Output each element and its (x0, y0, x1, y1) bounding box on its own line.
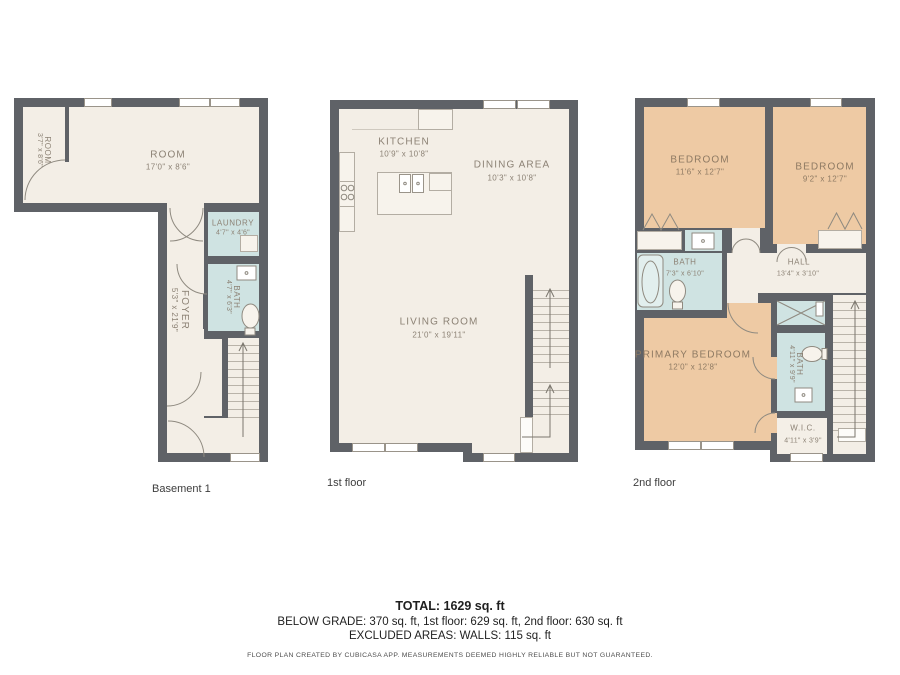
basement-plan: ROOM 3'7" x 8'6" ROOM 17'0" x 8'6" LAUND… (14, 98, 268, 463)
caption-first-floor: 1st floor (327, 477, 366, 489)
toilet-icon (242, 304, 259, 328)
room-dims: 10'3" x 10'8" (487, 174, 536, 183)
bifold-door (828, 213, 862, 229)
room-dims: 5'3" x 21'9" (170, 288, 179, 332)
second-floor-plan: BEDROOM 11'6" x 12'7" BEDROOM 9'2" x 12'… (635, 98, 875, 465)
stairs-arrow (239, 343, 247, 437)
room-label: BATH 4'7" x 6'3" (225, 280, 241, 314)
door-arc (170, 208, 203, 241)
room-label: W.I.C. (790, 424, 815, 433)
excluded-areas-text: EXCLUDED AREAS: WALLS: 115 sq. ft (0, 630, 900, 642)
stairs-arrow (837, 301, 859, 437)
sink-icon (692, 233, 714, 249)
stove-burner (341, 194, 347, 200)
door-arc (167, 372, 201, 406)
room-label: LAUNDRY (212, 219, 254, 228)
room-dims: 4'7" x 6'3" (225, 280, 232, 314)
toilet-icon (802, 347, 822, 362)
toilet-tank (822, 349, 827, 360)
room-label: LIVING ROOM (400, 317, 479, 328)
room-label: DINING AREA (474, 160, 551, 171)
room-label: ROOM (150, 150, 186, 161)
room-label: FOYER 5'3" x 21'9" (170, 288, 190, 332)
room-dims: 17'0" x 8'6" (146, 163, 190, 172)
disclaimer-text: FLOOR PLAN CREATED BY CUBICASA APP. MEAS… (0, 652, 900, 659)
bifold-door (643, 214, 679, 230)
total-area-text: TOTAL: 1629 sq. ft (0, 599, 900, 613)
toilet-icon (670, 280, 686, 302)
stairs-arrow (546, 289, 554, 368)
room-dims: 10'9" x 10'8" (379, 150, 428, 159)
room-dims: 4'11" x 9'9" (788, 345, 795, 383)
room-label: KITCHEN (378, 137, 430, 148)
room-dims: 4'11" x 3'9" (784, 438, 822, 445)
room-label: BATH 4'11" x 9'9" (788, 345, 804, 383)
stove-burner (348, 194, 354, 200)
room-label: BEDROOM (670, 155, 729, 166)
second-floor-fixtures (635, 98, 875, 465)
room-name: BATH (795, 345, 804, 383)
caption-basement: Basement 1 (152, 483, 211, 495)
area-breakdown-text: BELOW GRADE: 370 sq. ft, 1st floor: 629 … (0, 616, 900, 628)
room-dims: 4'7" x 4'6" (216, 230, 250, 237)
room-dims: 13'4" x 3'10" (777, 271, 819, 278)
sink-drain (417, 182, 420, 185)
door-arc (168, 421, 204, 457)
room-label: HALL (788, 258, 810, 267)
room-dims: 11'6" x 12'7" (676, 168, 724, 177)
room-name: BATH (232, 280, 241, 314)
room-dims: 12'0" x 12'8" (668, 363, 717, 372)
door-arc (732, 239, 746, 253)
washer-icon (816, 302, 823, 316)
stairs-arrow (522, 385, 554, 437)
room-label: BEDROOM (795, 162, 854, 173)
room-name: FOYER (179, 288, 190, 332)
door-arc (755, 413, 775, 433)
room-label: PRIMARY BEDROOM (635, 350, 751, 361)
door-arc (170, 208, 203, 241)
sink-icon (795, 388, 812, 402)
door-arc (728, 303, 758, 333)
room-dims: 9'2" x 12'7" (803, 175, 847, 184)
toilet-tank (245, 328, 255, 335)
stove-burner (341, 185, 347, 191)
room-name: ROOM (43, 133, 52, 167)
stove-burner (348, 185, 354, 191)
room-dims: 7'3" x 6'10" (666, 271, 704, 278)
door-arc (746, 239, 760, 253)
sink-drain (404, 182, 407, 185)
first-floor-fixtures (330, 100, 578, 462)
floor-plan-page: ROOM 3'7" x 8'6" ROOM 17'0" x 8'6" LAUND… (0, 0, 900, 675)
room-dims: 3'7" x 8'6" (36, 133, 43, 167)
toilet-tank (673, 302, 683, 309)
room-label: BATH (673, 258, 696, 267)
room-label: ROOM 3'7" x 8'6" (36, 133, 52, 167)
room-dims: 21'0" x 19'11" (412, 331, 465, 340)
first-floor-plan: KITCHEN 10'9" x 10'8" DINING AREA 10'3" … (330, 100, 578, 462)
sink-icon (237, 266, 256, 280)
door-arc (753, 357, 775, 379)
caption-second-floor: 2nd floor (633, 477, 676, 489)
